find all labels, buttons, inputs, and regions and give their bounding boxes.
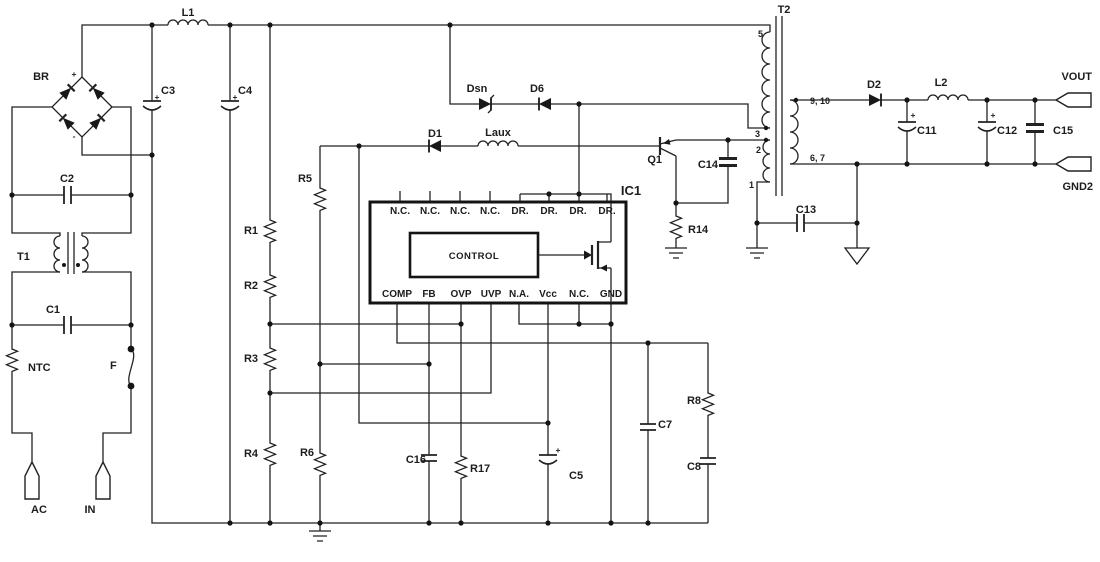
label-t2-pin1: 1 [749, 180, 754, 190]
ic1-pin-top-6: DR. [540, 206, 557, 217]
schematic-page: BR + - L1 C3 + C4 + C2 T1 C1 NTC F AC IN… [0, 0, 1100, 562]
label-l2: L2 [935, 77, 948, 89]
label-ac: AC [31, 504, 47, 516]
resistor-r14 [671, 213, 682, 241]
label-d1: D1 [428, 128, 442, 140]
label-t1: T1 [17, 251, 30, 263]
transformer-t2 [762, 16, 798, 196]
connector-in [96, 462, 110, 499]
inductor-laux [478, 141, 518, 146]
inductor-l1 [168, 20, 208, 25]
connector-ac [25, 462, 39, 499]
ground-earth-r6 [309, 531, 331, 541]
label-control: CONTROL [449, 251, 499, 262]
capacitor-c5 [539, 455, 557, 464]
label-c3: C3 [161, 85, 175, 97]
label-r17: R17 [470, 463, 490, 475]
label-r14: R14 [688, 224, 709, 236]
ic1-pin-top-7: DR. [569, 206, 586, 217]
bridge-rectifier [52, 77, 112, 137]
capacitor-c13 [797, 214, 804, 232]
diode-d1 [429, 140, 441, 153]
ground-earth-aux [746, 248, 768, 258]
ic1-pin-nc: N.C. [569, 289, 589, 300]
ic1-pin-top-3: N.C. [450, 206, 470, 217]
label-c11: C11 [917, 125, 937, 137]
resistor-r6 [315, 450, 326, 478]
capacitor-c1 [64, 316, 71, 334]
label-vout: VOUT [1061, 71, 1092, 83]
capacitor-c3 [143, 101, 161, 110]
transformer-t1 [54, 232, 88, 274]
capacitor-c4 [221, 101, 239, 110]
label-in: IN [85, 504, 96, 516]
label-c4: C4 [238, 85, 253, 97]
label-c3-plus: + [155, 92, 160, 102]
label-f: F [110, 360, 117, 372]
labels: BR + - L1 C3 + C4 + C2 T1 C1 NTC F AC IN… [17, 4, 1093, 516]
label-gnd2: GND2 [1062, 181, 1093, 193]
ground-earth-r14 [665, 248, 687, 258]
ic1-pin-fb: FB [422, 289, 435, 300]
label-bridge-plus: + [72, 69, 77, 79]
label-c8: C8 [687, 461, 701, 473]
label-laux: Laux [485, 127, 512, 139]
ground-chassis-secondary [845, 248, 869, 264]
connector-gnd2 [1056, 157, 1091, 171]
label-c2: C2 [60, 173, 74, 185]
diode-d2 [869, 94, 881, 107]
connector-vout [1056, 93, 1091, 107]
label-r5: R5 [298, 173, 312, 185]
ic1-pin-top-2: N.C. [420, 206, 440, 217]
ic1-pin-top-1: N.C. [390, 206, 410, 217]
label-t2: T2 [778, 4, 791, 16]
label-d6: D6 [530, 83, 544, 95]
label-c7: C7 [658, 419, 672, 431]
resistor-ntc [7, 346, 18, 374]
ic1-pin-na: N.A. [509, 289, 529, 300]
label-c15: C15 [1053, 125, 1073, 137]
label-t2-pin2: 2 [756, 145, 761, 155]
label-d2: D2 [867, 79, 881, 91]
ic1-pin-uvp: UVP [481, 289, 502, 300]
ic1-pin-top-5: DR. [511, 206, 528, 217]
label-t2-sec-top: 9, 10 [810, 96, 830, 106]
resistor-r17 [456, 453, 467, 481]
label-ic1: IC1 [621, 183, 641, 198]
ic1-pin-ovp: OVP [450, 289, 471, 300]
label-t2-sec-bot: 6, 7 [810, 153, 825, 163]
label-c13: C13 [796, 204, 816, 216]
resistor-r1 [265, 217, 276, 245]
capacitor-c8 [700, 458, 716, 464]
label-c14: C14 [698, 159, 719, 171]
ic1-pin-top-8: DR. [598, 206, 615, 217]
diode-dsn [479, 95, 494, 113]
capacitor-c7 [640, 424, 656, 430]
label-c12: C12 [997, 125, 1017, 137]
label-r8: R8 [687, 395, 701, 407]
capacitor-c15 [1026, 125, 1044, 132]
label-r3: R3 [244, 353, 258, 365]
capacitor-c12 [978, 122, 996, 131]
ic1-pin-gnd: GND [600, 289, 622, 300]
ic1-pin-top-4: N.C. [480, 206, 500, 217]
label-c16: C16 [406, 454, 426, 466]
inductor-l2 [928, 95, 968, 100]
resistor-r8 [703, 390, 714, 418]
flyback-converter-schematic: BR + - L1 C3 + C4 + C2 T1 C1 NTC F AC IN… [0, 0, 1100, 562]
label-dsn: Dsn [467, 83, 488, 95]
capacitor-c14 [719, 159, 737, 166]
label-c11-plus: + [911, 110, 916, 120]
diode-d6 [539, 98, 551, 111]
label-t2-pin3: 3 [755, 129, 760, 139]
ic1-pin-comp: COMP [382, 289, 412, 300]
label-c1: C1 [46, 304, 60, 316]
resistor-r4 [265, 440, 276, 468]
label-c5-plus: + [556, 445, 561, 455]
label-c5: C5 [569, 470, 583, 482]
label-br: BR [33, 71, 49, 83]
resistor-r5 [315, 185, 326, 213]
resistor-r3 [265, 345, 276, 373]
capacitor-c11 [898, 122, 916, 131]
label-r4: R4 [244, 448, 259, 460]
fuse [128, 346, 135, 390]
label-bridge-minus: - [73, 131, 76, 141]
label-ntc: NTC [28, 362, 51, 374]
label-q1: Q1 [647, 154, 662, 166]
label-l1: L1 [182, 7, 195, 19]
junction-dots [9, 22, 1037, 525]
resistor-r2 [265, 272, 276, 300]
label-r6: R6 [300, 447, 314, 459]
label-c12-plus: + [991, 110, 996, 120]
label-t2-pin5: 5 [758, 29, 763, 39]
label-c4-plus: + [233, 92, 238, 102]
label-r2: R2 [244, 280, 258, 292]
capacitor-c2 [64, 186, 71, 204]
label-r1: R1 [244, 225, 258, 237]
ic1-pin-vcc: Vcc [539, 289, 557, 300]
transistor-q1 [660, 137, 676, 203]
